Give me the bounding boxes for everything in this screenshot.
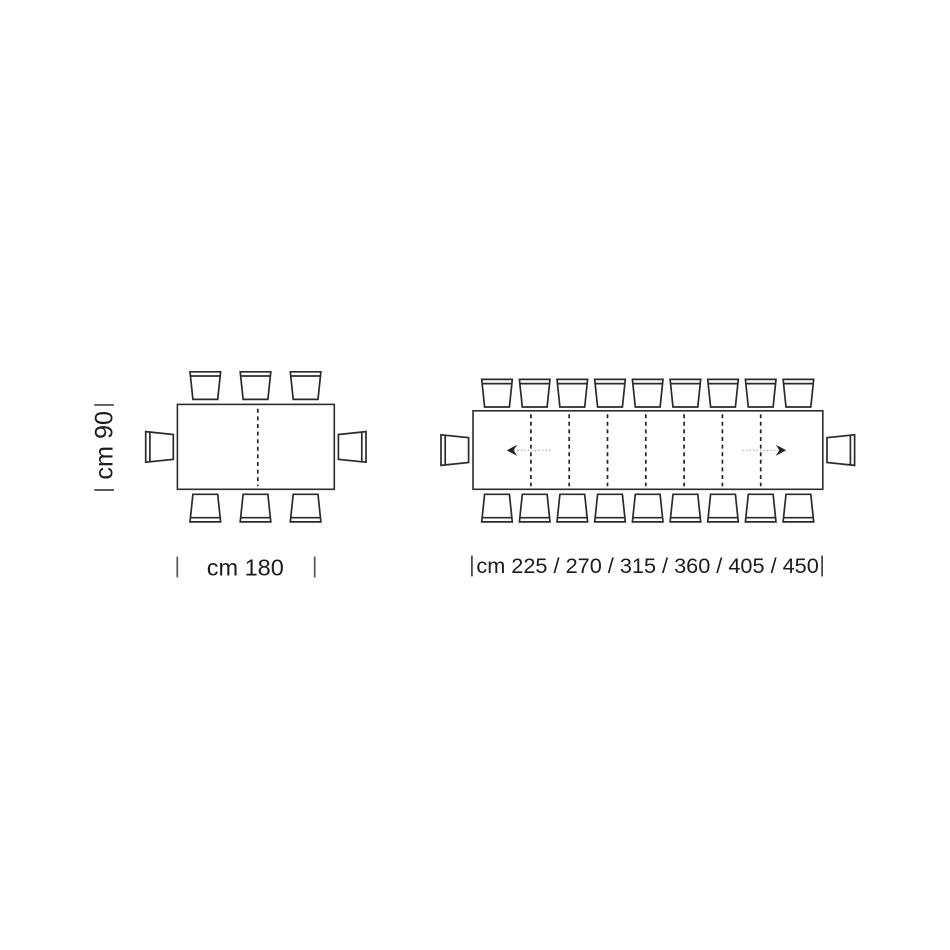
svg-text:cm 90: cm 90: [91, 411, 119, 480]
svg-text:cm 225 / 270 / 315 / 360 / 405: cm 225 / 270 / 315 / 360 / 405 / 450: [476, 553, 818, 578]
svg-text:cm 180: cm 180: [207, 554, 284, 580]
